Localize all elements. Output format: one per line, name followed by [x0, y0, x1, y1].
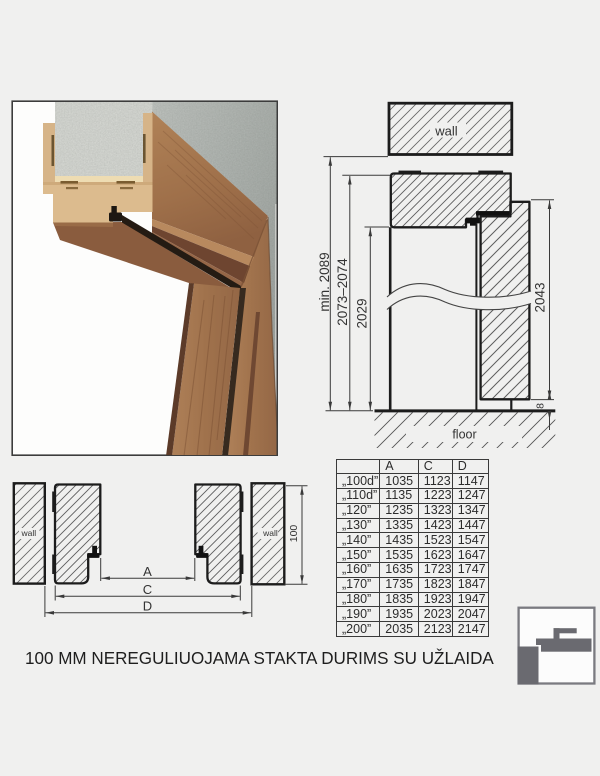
svg-text:8: 8: [535, 403, 547, 409]
svg-text:2043: 2043: [533, 282, 548, 312]
svg-text:100: 100: [288, 525, 300, 543]
svg-text:A: A: [143, 564, 152, 579]
svg-text:2029: 2029: [355, 298, 370, 328]
svg-text:wall: wall: [262, 528, 278, 538]
svg-text:2073–2074: 2073–2074: [335, 258, 350, 326]
svg-text:D: D: [143, 599, 152, 614]
svg-text:floor: floor: [452, 428, 476, 442]
svg-text:wall: wall: [20, 528, 36, 538]
svg-text:wall: wall: [434, 124, 458, 139]
svg-text:min. 2089: min. 2089: [317, 252, 332, 311]
svg-text:C: C: [143, 582, 152, 597]
